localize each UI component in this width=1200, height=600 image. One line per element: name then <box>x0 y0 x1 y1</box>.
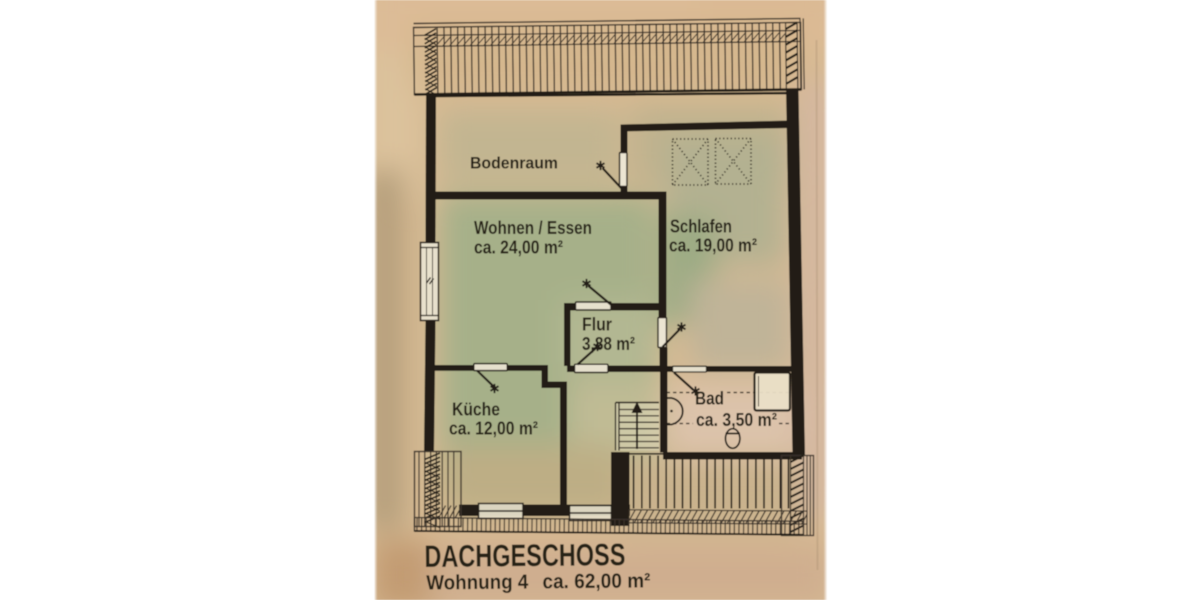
svg-text:DACHGESCHOSS: DACHGESCHOSS <box>424 537 625 574</box>
svg-text:ca. 19,00 m²: ca. 19,00 m² <box>669 235 757 256</box>
svg-text:ca. 12,00 m²: ca. 12,00 m² <box>449 418 538 439</box>
svg-text:ca. 62,00 m²: ca. 62,00 m² <box>542 569 650 593</box>
svg-text:Flur: Flur <box>582 314 612 335</box>
svg-text:Küche: Küche <box>452 399 500 420</box>
svg-text:Schlafen: Schlafen <box>670 216 732 237</box>
svg-text:ca. 3,50 m²: ca. 3,50 m² <box>696 409 777 430</box>
svg-text:3,88 m²: 3,88 m² <box>582 333 635 354</box>
svg-text:ca. 24,00 m²: ca. 24,00 m² <box>474 237 563 258</box>
svg-text:Bodenraum: Bodenraum <box>470 154 558 173</box>
svg-text:Bad: Bad <box>695 388 724 409</box>
svg-text:Wohnen / Essen: Wohnen / Essen <box>474 217 592 238</box>
svg-text:Wohnung 4: Wohnung 4 <box>426 571 529 595</box>
